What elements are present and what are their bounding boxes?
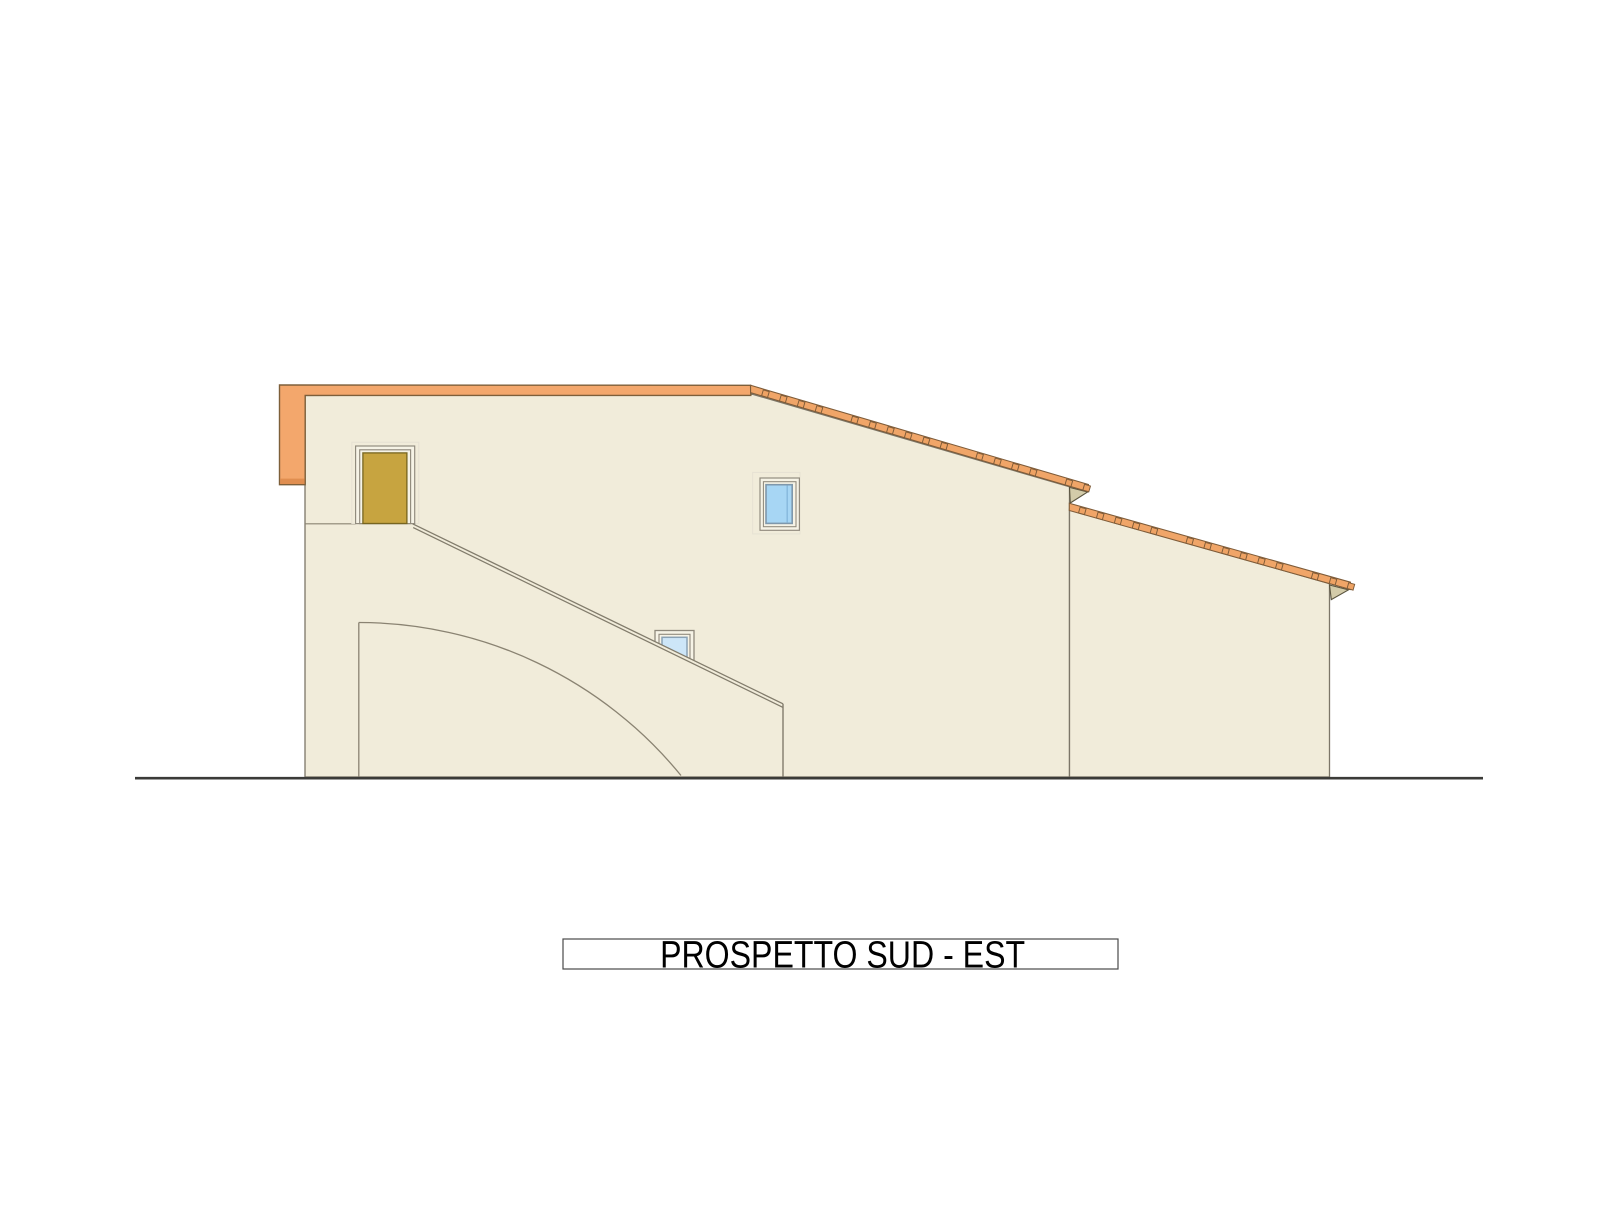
svg-text:PROSPETTO SUD - EST: PROSPETTO SUD - EST	[660, 935, 1025, 977]
